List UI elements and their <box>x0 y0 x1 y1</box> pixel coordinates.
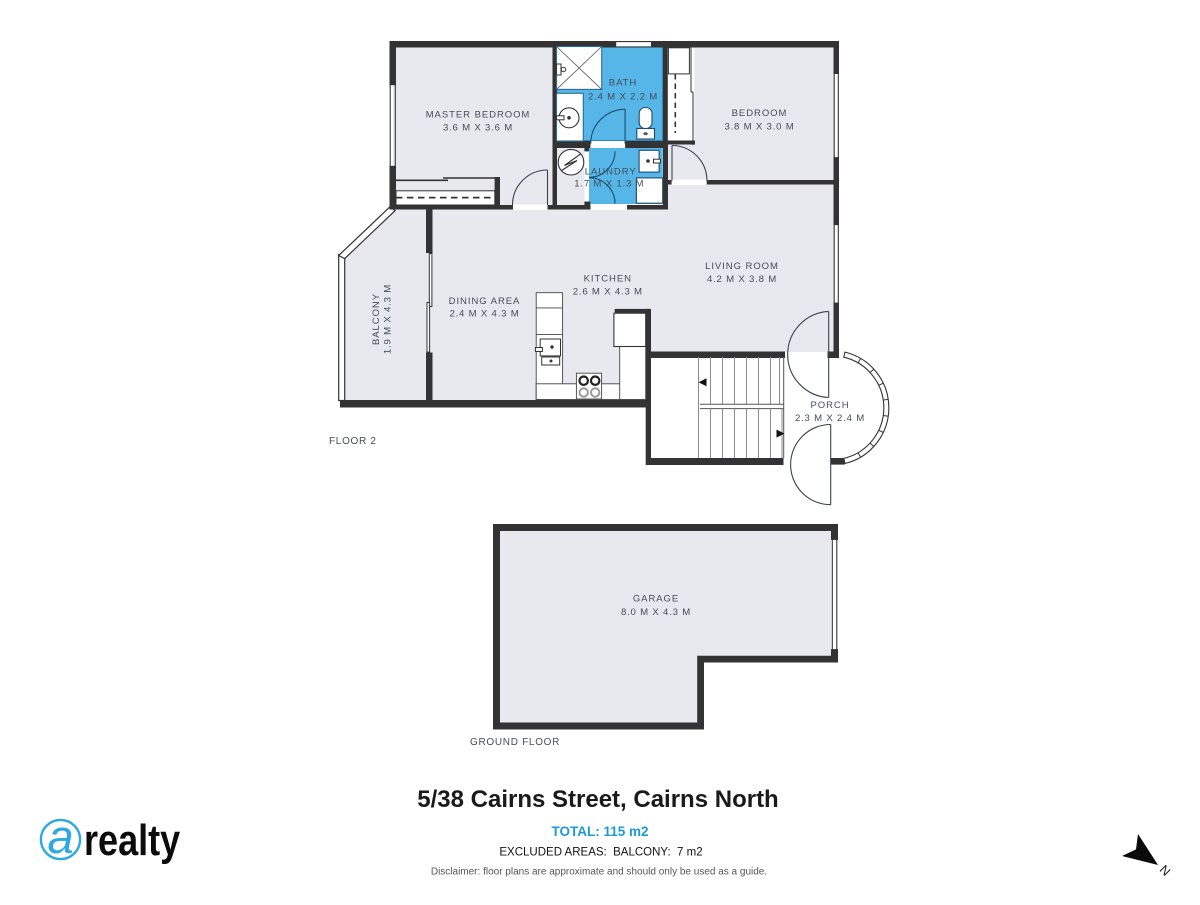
svg-text:5/38 Cairns Street, Cairns Nor: 5/38 Cairns Street, Cairns North <box>417 786 778 813</box>
svg-text:GARAGE: GARAGE <box>633 594 679 605</box>
svg-text:BATH: BATH <box>609 78 637 89</box>
svg-text:realty: realty <box>84 816 181 865</box>
svg-text:TOTAL: 115 m2: TOTAL: 115 m2 <box>551 824 648 839</box>
svg-text:PORCH: PORCH <box>810 400 849 411</box>
svg-text:FLOOR 2: FLOOR 2 <box>329 436 377 447</box>
svg-text:2.6 M X 4.3 M: 2.6 M X 4.3 M <box>573 287 643 298</box>
svg-text:BEDROOM: BEDROOM <box>732 108 788 119</box>
svg-text:a: a <box>48 810 74 863</box>
svg-text:EXCLUDED AREAS: BALCONY: 7 m: EXCLUDED AREAS: BALCONY: 7 m2 <box>499 847 702 859</box>
svg-text:LAUNDRY: LAUNDRY <box>585 166 637 177</box>
svg-text:3.6 M X 3.6 M: 3.6 M X 3.6 M <box>443 122 513 133</box>
svg-text:2.4 M X 2.2 M: 2.4 M X 2.2 M <box>588 92 658 103</box>
svg-text:KITCHEN: KITCHEN <box>584 274 632 285</box>
svg-text:1.7 M X 1.3 M: 1.7 M X 1.3 M <box>574 178 644 189</box>
svg-text:BALCONY: BALCONY <box>371 293 382 345</box>
svg-text:DINING AREA: DINING AREA <box>449 296 521 307</box>
svg-text:2.3 M X 2.4 M: 2.3 M X 2.4 M <box>795 413 865 424</box>
svg-text:1.9 M X 4.3 M: 1.9 M X 4.3 M <box>383 284 394 354</box>
svg-text:4.2 M X 3.8 M: 4.2 M X 3.8 M <box>707 274 777 285</box>
svg-text:GROUND FLOOR: GROUND FLOOR <box>470 737 560 748</box>
svg-text:Disclaimer: floor plans are ap: Disclaimer: floor plans are approximate … <box>431 867 767 878</box>
svg-text:2.4 M X 4.3 M: 2.4 M X 4.3 M <box>449 309 519 320</box>
svg-text:3.8 M X 3.0 M: 3.8 M X 3.0 M <box>724 122 794 133</box>
svg-text:8.0 M X 4.3 M: 8.0 M X 4.3 M <box>621 607 691 618</box>
svg-text:MASTER BEDROOM: MASTER BEDROOM <box>426 110 531 121</box>
svg-text:LIVING ROOM: LIVING ROOM <box>705 261 779 272</box>
